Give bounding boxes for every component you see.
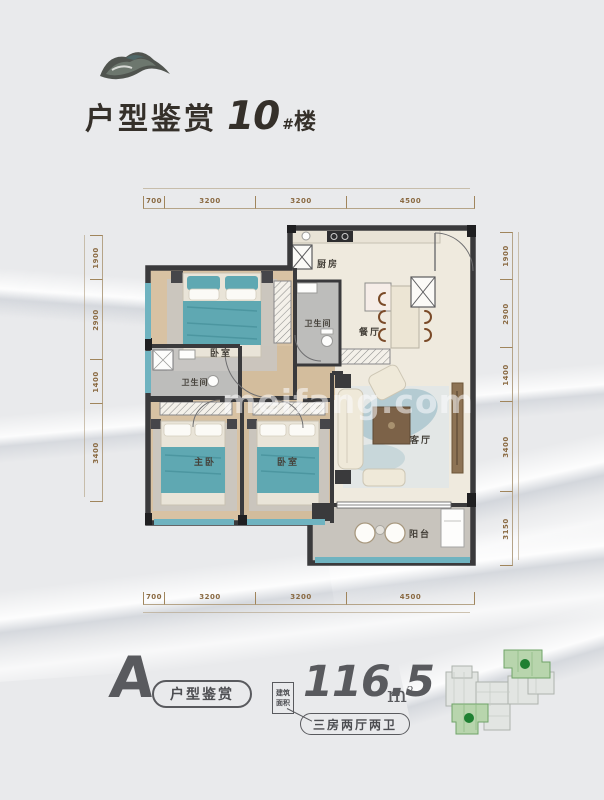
unit-letter: A xyxy=(107,650,157,707)
toilet xyxy=(208,376,219,387)
keyplan-dot xyxy=(520,659,530,669)
window xyxy=(247,519,325,525)
ink-mountain-logo xyxy=(96,44,174,88)
pillow xyxy=(189,289,219,300)
nightstand xyxy=(151,419,161,429)
room-label-bedroom-top: 卧室 xyxy=(210,347,232,359)
fridge xyxy=(365,283,391,311)
area-label-line1: 建筑 xyxy=(276,688,290,699)
pillow xyxy=(225,276,258,290)
balcony-chair xyxy=(355,523,375,543)
toilet xyxy=(322,336,333,347)
pillow xyxy=(289,424,315,436)
room-label-master: 主卧 xyxy=(194,456,216,468)
side-table xyxy=(335,374,351,388)
nightstand xyxy=(171,271,183,283)
unit-type-pill: 户型鉴赏 xyxy=(152,680,252,708)
pillow xyxy=(195,424,222,436)
window xyxy=(145,283,151,339)
room-label-dining: 餐厅 xyxy=(358,326,381,338)
floor-plan: 卧室 卫生间 厨房 餐厅 卫生间 主卧 卧室 客厅 阳台 xyxy=(75,183,530,628)
building-suffix: 楼 xyxy=(294,110,316,135)
pillow xyxy=(260,424,286,436)
sofa xyxy=(338,389,363,469)
area-label-line2: 面积 xyxy=(276,698,290,709)
title-text: 户型鉴赏 xyxy=(85,102,217,137)
number-sign: # xyxy=(282,117,294,133)
building-key-plan xyxy=(440,642,568,744)
poster-page: 户型鉴赏10#楼 700 3200 3200 4500 700 3200 320… xyxy=(0,0,604,800)
column xyxy=(287,225,296,233)
column xyxy=(467,493,476,507)
balcony-cabinet xyxy=(441,509,464,547)
building-number: 10 xyxy=(227,94,279,139)
room-label-bedroom-bottom: 卧室 xyxy=(277,456,299,468)
column xyxy=(145,338,152,350)
bed-blanket xyxy=(257,447,319,493)
room-label-bath-mid: 卫生间 xyxy=(182,377,209,387)
coffee-table-decor xyxy=(388,422,395,429)
column xyxy=(238,515,247,525)
wardrobe xyxy=(160,402,232,415)
column xyxy=(145,513,152,525)
room-label-bath-top: 卫生间 xyxy=(305,318,332,328)
keyplan-unit xyxy=(452,666,472,678)
room-label-living: 客厅 xyxy=(409,434,432,446)
wall-block xyxy=(312,505,332,521)
pillow xyxy=(226,289,256,300)
sink xyxy=(302,232,310,240)
window xyxy=(145,351,151,393)
page-title: 户型鉴赏10#楼 xyxy=(85,94,316,139)
column xyxy=(467,225,476,237)
toilet-tank xyxy=(321,329,333,334)
keyplan-unit xyxy=(476,682,510,706)
nightstand xyxy=(227,419,237,429)
bed-blanket xyxy=(161,447,225,493)
pillow xyxy=(164,424,191,436)
balcony-window xyxy=(315,557,470,563)
vanity xyxy=(297,283,317,293)
sideboard xyxy=(340,349,390,364)
balcony-table xyxy=(376,526,385,535)
layout-badge: 三房两厅两卫 xyxy=(300,713,410,735)
area-unit-base: m xyxy=(387,683,407,707)
nightstand xyxy=(247,419,257,429)
window xyxy=(154,519,234,525)
balcony-chair xyxy=(385,523,405,543)
ottoman xyxy=(363,469,405,486)
pillow xyxy=(187,276,220,290)
counter xyxy=(292,230,440,243)
nightstand xyxy=(320,419,330,429)
side-table xyxy=(335,470,351,484)
room-label-kitchen: 厨房 xyxy=(317,258,339,270)
keyplan-dot xyxy=(464,713,474,723)
room-label-balcony: 阳台 xyxy=(409,528,431,540)
nightstand xyxy=(261,271,273,283)
wardrobe xyxy=(274,281,291,343)
area-value: 116.5 xyxy=(303,661,434,704)
area-unit-sup: 2 xyxy=(407,684,414,697)
area-unit: m2 xyxy=(387,683,414,707)
vanity xyxy=(179,350,195,359)
